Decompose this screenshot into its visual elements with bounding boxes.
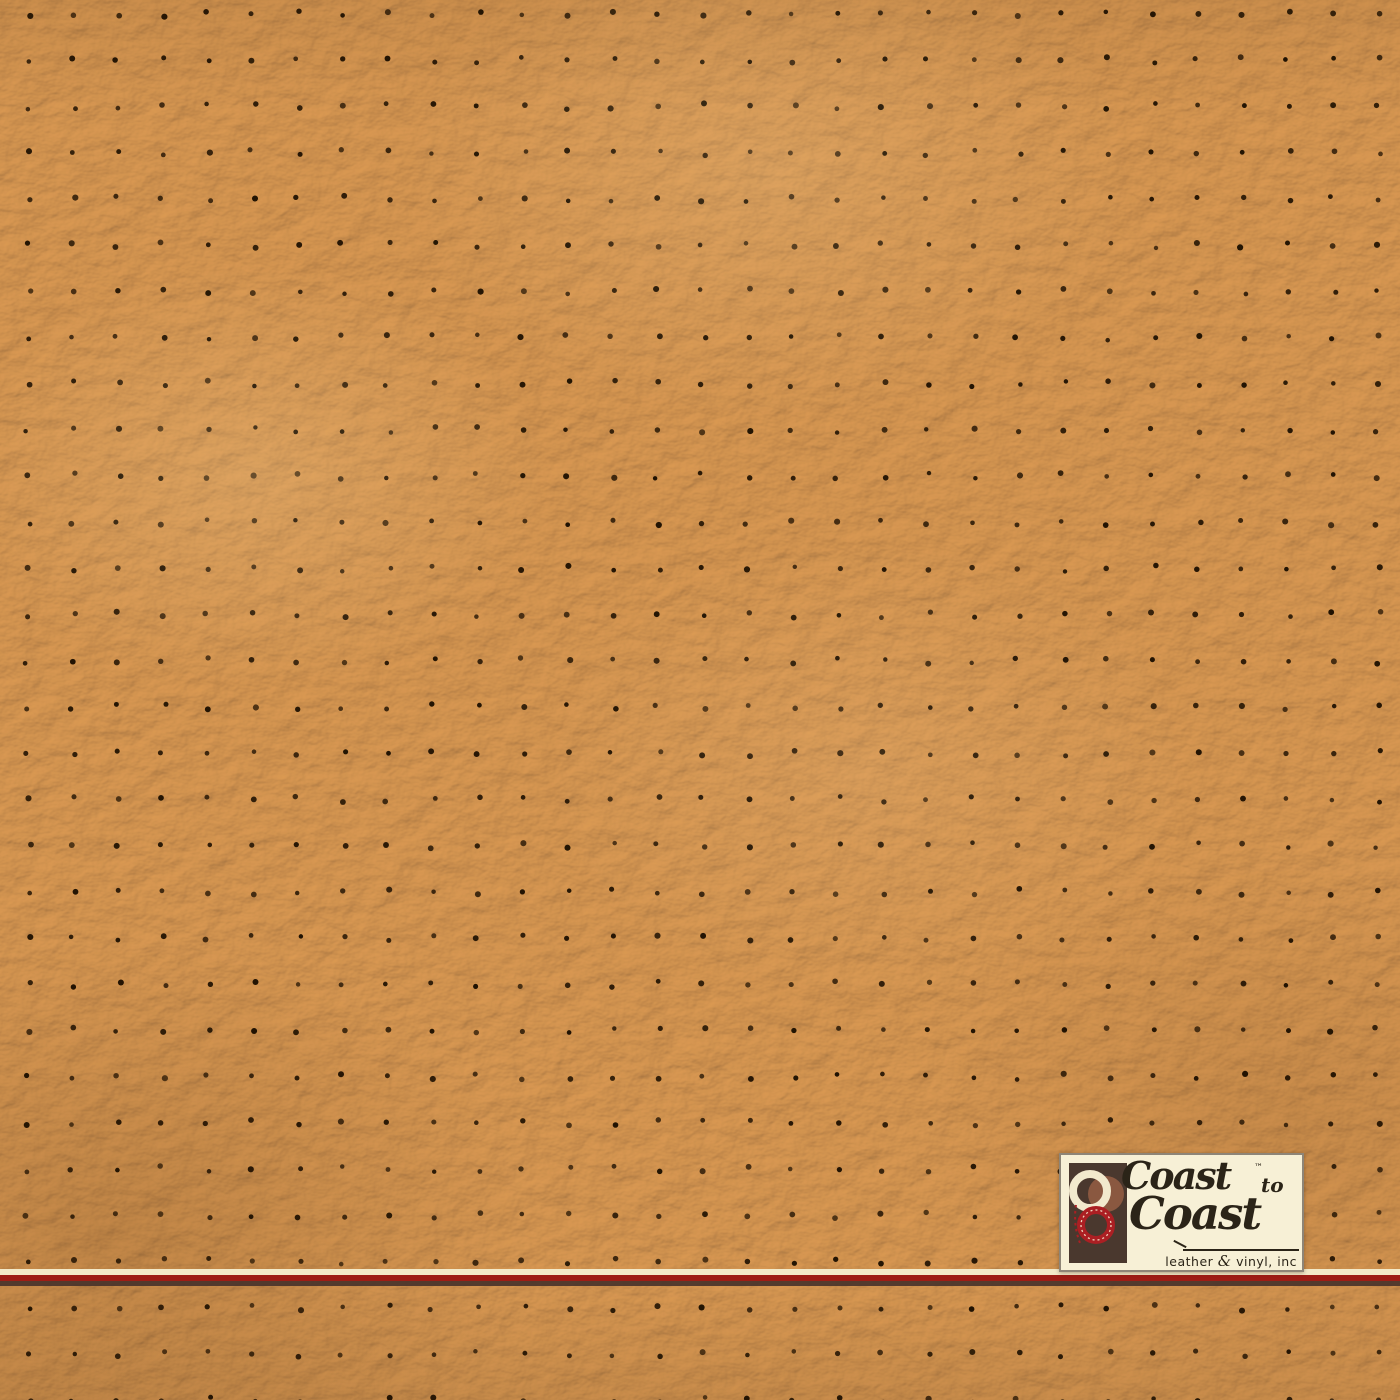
- underline-rule: [1183, 1249, 1299, 1251]
- swash-flourish: [1173, 1240, 1186, 1248]
- logo-text-block: Coast ™ to Coast leather & vinyl, inc: [1061, 1155, 1302, 1270]
- trademark-symbol: ™: [1254, 1163, 1263, 1173]
- leather-swatch-image: Coast ™ to Coast leather & vinyl, inc: [0, 0, 1400, 1400]
- brand-logo-badge: Coast ™ to Coast leather & vinyl, inc: [1059, 1153, 1304, 1272]
- divider-stripe-brown: [0, 1281, 1400, 1286]
- logo-tagline: leather & vinyl, inc: [1165, 1253, 1297, 1270]
- ampersand: &: [1218, 1252, 1232, 1270]
- logo-word-coast-2: Coast: [1129, 1191, 1260, 1236]
- logo-word-to: to: [1261, 1175, 1284, 1195]
